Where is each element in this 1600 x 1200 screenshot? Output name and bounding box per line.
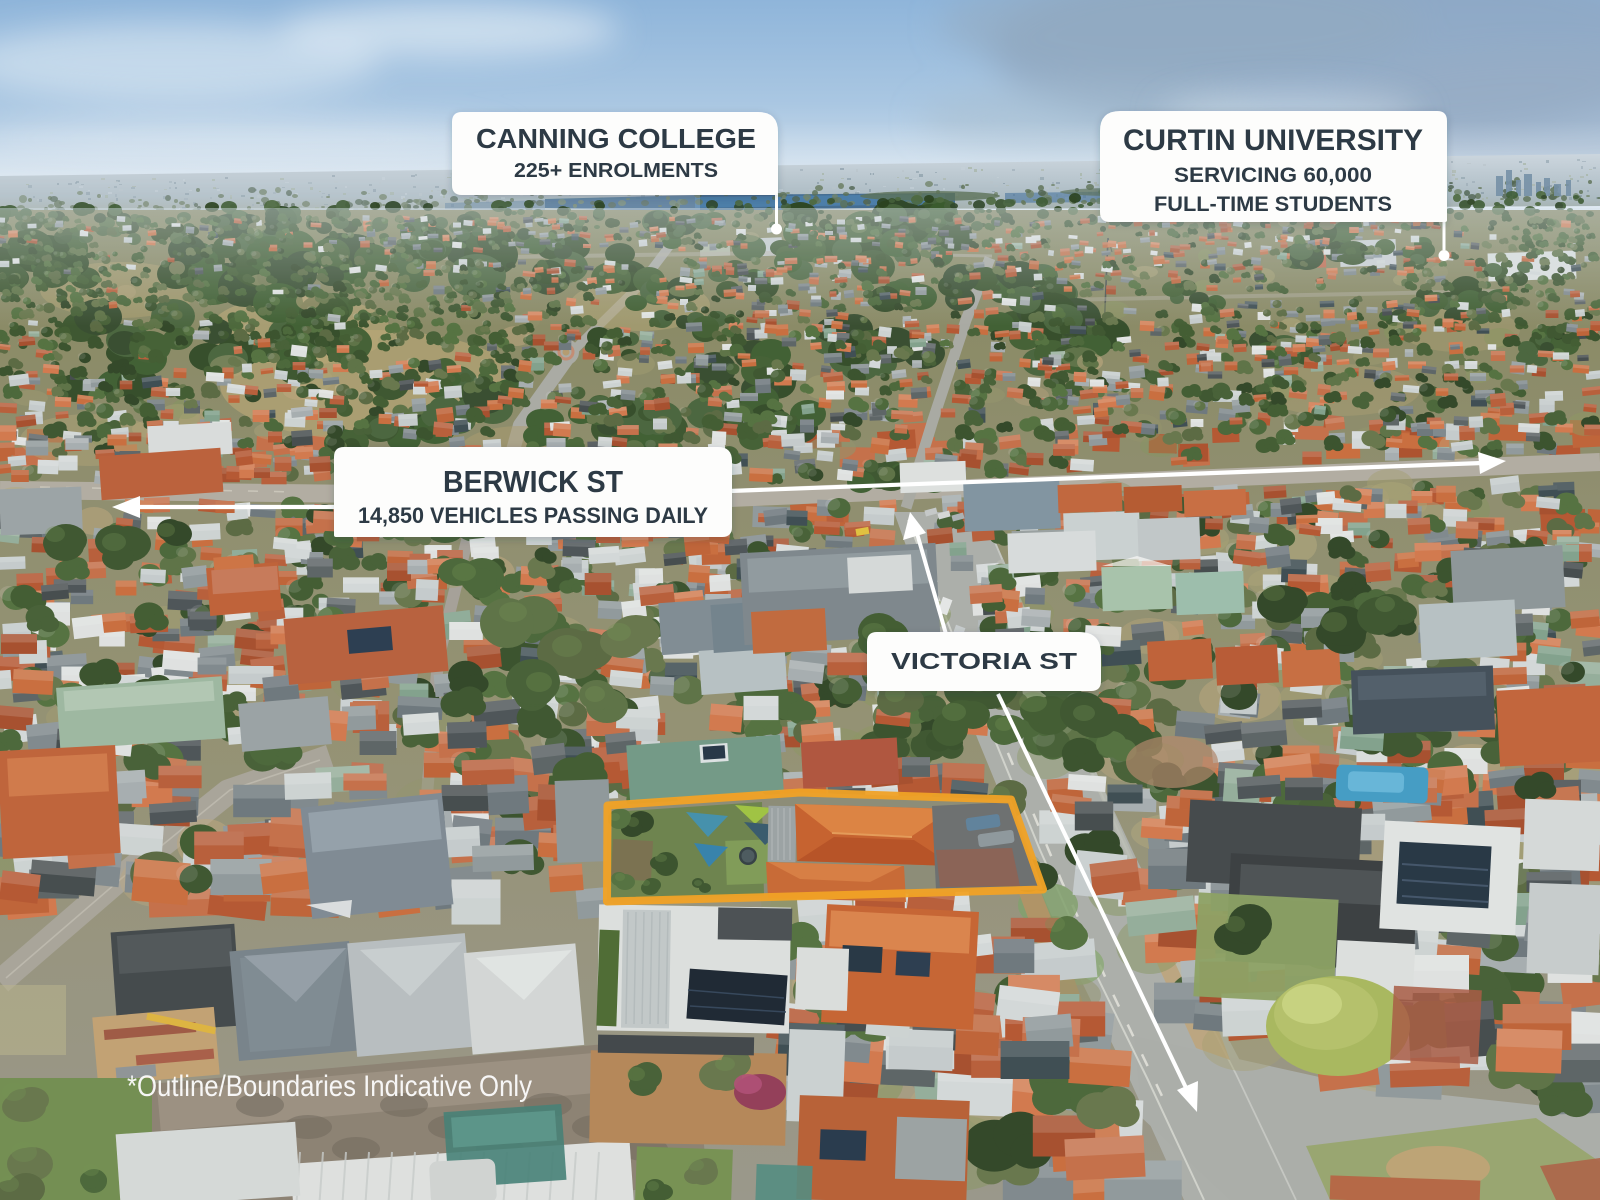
svg-text:CANNING COLLEGE: CANNING COLLEGE bbox=[476, 123, 756, 154]
svg-text:SERVICING 60,000: SERVICING 60,000 bbox=[1174, 163, 1372, 187]
svg-text:*Outline/Boundaries Indicative: *Outline/Boundaries Indicative Only bbox=[127, 1070, 532, 1103]
svg-text:14,850 VEHICLES PASSING DAILY: 14,850 VEHICLES PASSING DAILY bbox=[358, 503, 708, 528]
svg-text:225+ ENROLMENTS: 225+ ENROLMENTS bbox=[514, 160, 718, 182]
svg-text:BERWICK ST: BERWICK ST bbox=[443, 464, 623, 499]
svg-text:VICTORIA ST: VICTORIA ST bbox=[891, 648, 1077, 674]
svg-text:CURTIN UNIVERSITY: CURTIN UNIVERSITY bbox=[1123, 124, 1423, 157]
svg-text:FULL-TIME STUDENTS: FULL-TIME STUDENTS bbox=[1154, 192, 1392, 216]
